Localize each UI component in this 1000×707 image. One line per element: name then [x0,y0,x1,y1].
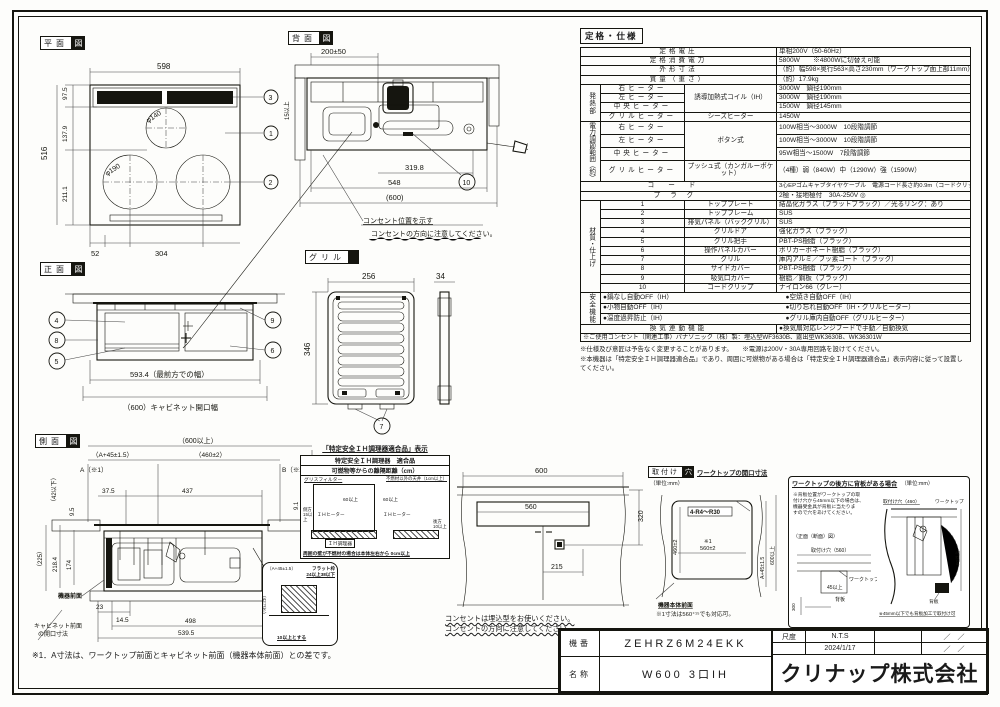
plan-dim-516: 516 [40,146,49,160]
detail-section [281,585,317,613]
spec-range-center: 中央ヒーター [601,148,685,161]
company-name: クリナップ株式会社 [773,655,987,692]
side-dim-498: 498 [185,618,196,625]
spec-note1: ※仕様及び意匠は予告なく変更することがあります。 ※電源は200V・30A専用回… [580,345,972,354]
front-dim-593: 593.4（最前方での幅） [130,369,209,379]
kiban-label: 機番 [561,631,600,657]
legend-label: サイドカバー [685,265,777,274]
spec-range-right: 右ヒーター [601,121,685,134]
backpanel-box: ワークトップの後方に背板がある場合 （単位:mm） ※背板位置がワークトップの取… [788,476,970,628]
plan-dim-137: 137.9 [62,125,69,142]
plan-dim-211: 211.1 [62,186,69,202]
detail-dim-42: （42以下） [261,593,267,617]
spec-size-label: 外形寸法 [581,66,777,75]
cabinet-view: 600 560 320 215 コンセントは埋込型をお使いください。 コンセント… [443,462,653,640]
safety-row: ●鍋なし自動OFF（IH）●空焼き自動OFF（IH） [601,293,971,303]
safety-left: ●小物自動OFF（IH） [603,304,666,312]
spec-plug: 2極・接地極付 30A-250V ◎ [777,191,971,200]
safety-right: ●切り忘れ自動OFF（IH・グリルヒーター） [786,304,969,312]
spec-safety-group: 安全機能 [581,293,601,324]
detail-box: （A+45±1.5） フラット枠 24以上38以下 （42以下） 10以上とする [262,562,338,646]
callout-4: 4 [55,318,59,325]
callout-1: 1 [269,131,273,138]
cabinet-dim-560: 560 [525,504,537,511]
side-dim-437: 437 [182,488,193,495]
grill-drawing: 256 34 346 7 [300,246,485,436]
rev-blank2 [875,643,922,655]
side-dim-95: 9.5 [70,507,76,516]
plan-title-zu: 図 [72,36,85,50]
legend-value: 樹脂／鋼板（ブラック） [777,274,971,283]
legend-no: 1 [601,200,685,209]
side-dim-145: 14.5 [116,617,129,624]
spec-outlet-note: ※ご使用コンセント（関連工事）パナソニック（株）製：埋込型WF3630B、露出型… [581,333,971,342]
bp-d45: 45以上 [827,584,843,591]
legend-no: 5 [601,237,685,246]
rear-dim-15: 15以上 [283,101,291,120]
safety-row: ●温度過昇防止（IH）●グリル庫内自動OFF（グリルヒーター） [601,314,971,324]
spec-left-val: 3000W 鍋径190mm [777,94,971,103]
legend-no: 4 [601,228,685,237]
spec-weight-label: 質量（重さ） [581,75,777,84]
cabinet-drawing: 600 560 320 215 [443,462,653,614]
bp-back1: 背板 [835,596,845,603]
cert-cooker-label: ＩＨ調理器 [325,539,355,548]
rev-blank1 [875,631,922,643]
side-label-cab1: キャビネット前面 [34,622,82,630]
side-view-title: 側面図 [35,434,80,448]
cert-filter-label: グリスフィルター [304,476,342,483]
callout-7: 7 [380,424,384,431]
legend-value: 庫内アルミ／フッ素コート（ブラック） [777,256,971,265]
callout-3: 3 [269,95,273,102]
cabinet-dim-600: 600 [535,466,548,475]
spec-section: 定格・仕様 定格電圧単相200V（50-60Hz） 定格消費電力5800W ※4… [580,26,972,373]
spec-voltage: 単相200V（50-60Hz） [777,48,971,57]
safety-right: ●グリル庫内自動OFF（グリルヒーター） [786,315,969,323]
mount-ref: ※1 [704,538,712,545]
legend-no: 6 [601,246,685,255]
cert-foot: 周囲の壁が不燃材の場合は本体左右から 0cm以上 [303,550,410,557]
spec-size: （約）幅598×奥行563×高さ230mm（ワークトップ面上部11mm） [777,66,971,75]
side-dim-42: （42以下） [51,474,58,505]
side-dim-5395: 539.5 [178,630,195,637]
bp-d60: 60以上 [954,550,960,565]
backpanel-title: ワークトップの後方に背板がある場合 [792,479,897,488]
drawing-sheet: 平面図 φ140 φ190 598 516 [0,0,1000,707]
rear-title-zu: 図 [320,31,333,45]
spec-range-left-val: 100W相当～3000W 10段階調節 [777,134,971,147]
kiban-value: ZEHRZ6M24EKK [600,631,772,657]
side-label-front: 機器前面 [58,592,82,600]
legend-value: SUS [777,219,971,228]
cert-ih2: ＩＨヒーター [383,512,411,518]
side-dim-23: 23 [96,604,104,611]
bp-back2: 背板 [929,598,939,605]
bp-hole560: 取付け穴（560） [811,547,849,554]
rear-dim-600: (600) [386,193,404,202]
spec-power: 5800W ※4800Wに切替え可能 [777,57,971,66]
scale-value: N.T.S [806,631,875,643]
safety-left: ●鍋なし自動OFF（IH） [603,294,673,302]
mount-drawing: 4-R4～R30 460±2 ※1 560±2 A+45±1.5 600以上 機… [648,487,786,617]
spec-range-left: 左ヒーター [601,134,685,147]
side-note: ※1．A寸法は、ワークトップ前面とキャビネット前面（機器本体前面）との差です。 [32,650,336,661]
plan-drawing: φ140 φ190 598 516 97.5 137.9 211.1 52 30… [35,30,290,262]
rear-note2: コンセントの方向に注意してください。 [371,229,497,238]
spec-note2: ※本機器は「特定安全ＩＨ調理器適合品」であり、周囲に可燃物がある場合は「特定安全… [580,355,965,374]
rear-dim-200: 200±50 [321,47,346,56]
cabinet-note1: コンセントは埋込型をお使いください。 [445,614,653,624]
backpanel-unit: （単位:mm） [901,479,933,488]
cert-head2: 可燃物等からの離隔距離（cm） [301,466,449,476]
plan-dia140: φ140 [145,110,163,125]
legend-no: 10 [601,283,685,292]
bp-worktop1: ワークトップ [849,577,877,583]
plan-view-title: 平面図 [40,36,85,50]
cert-ih1: ＩＨヒーター [317,512,345,518]
legend-label: 吸気口カバー [685,274,777,283]
scale-label: 尺度 [773,631,806,643]
legend-value: PBT-PS樹脂（ブラック） [777,237,971,246]
spec-vent: ●換気扇対応レンジフードで手動／自動換気 [777,324,971,333]
cert-title: 「特定安全ＩＨ調理器適合品」表示 [300,443,450,453]
spec-table: 定格電圧単相200V（50-60Hz） 定格消費電力5800W ※4800Wに切… [580,47,971,342]
rear-view: 背面図 15以上 2 [283,25,528,245]
backpanel-right-diagram: 取付け穴（460） ワークトップ 60以上 背板 ※45mm以下でも背板加工で取… [877,495,967,621]
spec-right-val: 3000W 鍋径190mm [777,84,971,93]
cabinet-dim-320: 320 [638,510,645,522]
legend-label: グリルドア [685,228,777,237]
callout-8: 8 [55,338,59,345]
mount-title-text: 取付け [648,466,683,478]
mount-corner: 4-R4～R30 [690,510,721,516]
title-block-left: 機番 ZEHRZ6M24EKK 名称 W600 3口IH [560,630,772,692]
spec-range-group: 電力調節範囲（約） [581,121,601,181]
side-dim-375: 37.5 [102,488,115,495]
spec-plug-text: 2極・接地極付 30A-250V [779,192,858,199]
rev-marks2: ／ ／ [922,643,987,655]
mount-dim-600: 600以上 [768,546,776,565]
grill-view: グリル 256 34 346 [300,246,485,436]
cert-ceiling-label: 不燃材以外の天井（1cm以上） [386,476,447,482]
callout-2: 2 [269,180,273,187]
mount-unit: （単位:mm） [650,479,786,487]
plug-icon: ◎ [860,192,866,199]
side-dim-225: （225） [37,548,44,570]
grill-title-square [349,250,359,264]
grill-dim-34: 34 [436,272,445,281]
front-drawing: 4 8 5 9 6 593.4（最前方での幅） （600）キャビネット開口幅 [35,258,290,418]
backpanel-note: ※背板位置がワークトップの取 付け穴から45mm以下の場合は、 機器受金具が背板… [793,493,871,517]
side-dim-600over: （600以上） [178,436,218,445]
mount-title-inv: 穴 [683,466,694,478]
grill-dim-346: 346 [303,342,312,356]
cabinet-dim-215: 215 [551,564,563,571]
spec-power-label: 定格消費電力 [581,57,777,66]
name-label: 名称 [561,657,600,692]
cert-counter-right [393,530,439,539]
backpanel-left-diagram: 取付け穴（560） ワークトップ 45以上 背板 300 [791,541,877,623]
plan-dim-304: 304 [155,249,168,258]
side-dim-460: （460±2） [195,451,226,459]
front-view-title: 正面図 [40,262,85,276]
plan-dim-52: 52 [91,249,99,258]
rear-view-title: 背面図 [288,31,333,45]
safety-row: ●小物自動OFF（IH）●切り忘れ自動OFF（IH・グリルヒーター） [601,303,971,313]
front-title-text: 正面 [40,262,72,276]
spec-weight: （約）17.9kg [777,75,971,84]
safety-left: ●温度過昇防止（IH） [603,315,666,323]
front-title-zu: 図 [72,262,85,276]
grill-title-text: グリル [305,250,349,264]
cert-d60b: 60以上 [383,496,398,503]
legend-label: グリル把手 [685,237,777,246]
mount-box: 取付け穴 ワークトップの開口寸法 （単位:mm） 4-R4～R30 460±2 … [648,466,786,626]
legend-value: 結晶化ガラス（フラットブラック）／光るリング：あり [777,200,971,209]
bp-foot: ※45mm以下でも背板加工で取付け可 [879,610,956,617]
rear-dim-319: 319.8 [405,163,424,172]
legend-value: PBT-PS樹脂（ブラック） [777,265,971,274]
plan-dim-97: 97.5 [62,87,69,100]
callout-9: 9 [271,318,275,325]
side-dim-a45: （A+45±1.5） [92,451,133,459]
legend-label: 排気パネル（バックグリル） [685,219,777,228]
mount-subtitle: ワークトップの開口寸法 [697,468,767,477]
cert-head1: 特定安全ＩＨ調理器 適合品 [301,456,449,466]
spec-range-center-val: 95W相当～1500W 7段階調節 [777,148,971,161]
legend-label: トップフレーム [685,209,777,218]
grill-view-title: グリル [305,250,359,264]
spec-plug-label: プラグ [581,191,777,200]
plan-title-text: 平面 [40,36,72,50]
cert-box: 「特定安全ＩＨ調理器適合品」表示 特定安全ＩＨ調理器 適合品 可燃物等からの離隔… [300,443,450,559]
legend-label: 操作パネルカバー [685,246,777,255]
legend-no: 9 [601,274,685,283]
title-block-right: 尺度 N.T.S ／ ／ 2024/1/17 ／ ／ クリナップ株式会社 [772,630,987,692]
legend-no: 8 [601,265,685,274]
bp-d300: 300 [791,603,796,611]
rear-drawing: 15以上 200±50 319.8 548 (600) 10 コンセント位置を示… [283,25,528,245]
rear-note1: コンセント位置を示す [363,216,433,225]
legend-label: グリル [685,256,777,265]
side-title-text: 側面 [35,434,67,448]
detail-worktop-line [269,615,329,616]
spec-range-grill-val: （4種）弱（840W）中（1290W）強（1590W） [777,161,971,182]
rev-marks1: ／ ／ [922,631,987,643]
bp-worktop2: ワークトップ [935,499,964,505]
spec-vent-label: 換気連動機能 [581,324,777,333]
spec-range-grill-type: プッシュ式（カンガルーポケット） [685,161,777,182]
side-label-cab2: の開口寸法 [38,630,68,638]
rear-dim-548: 548 [388,178,401,187]
legend-no: 2 [601,209,685,218]
safety-right: ●空焼き自動OFF（IH） [786,294,969,302]
spec-center-val: 1500W 鍋径145mm [777,103,971,112]
legend-no: 7 [601,256,685,265]
spec-cord: 3心EPゴムキャブタイヤケーブル 電源コード長さ約0.9m（コードクリップ部まで… [777,182,971,191]
legend-value: SUS [777,209,971,218]
legend-value: ナイロン66（グレー） [777,283,971,292]
side-dim-2184: 218.4 [53,556,59,572]
spec-grill-val: 1450W [777,112,971,121]
cert-diagram-left [313,484,375,532]
spec-range-right-val: 100W相当～3000W 10段階調節 [777,121,971,134]
cert-frame: 特定安全ＩＨ調理器 適合品 可燃物等からの離隔距離（cm） グリスフィルター 不… [300,455,450,559]
date-value: 2024/1/17 [806,643,875,655]
cert-counter-left [311,530,377,539]
spec-grill-heater: グリルヒーター [601,112,685,121]
spec-material-group: 材質・仕上げ [581,200,601,292]
backpanel-note-line: すので穴をあけてください。 [793,511,871,517]
name-value: W600 3口IH [600,657,772,692]
callout-10: 10 [463,180,471,187]
detail-frame-dim: 24以上38以下 [306,572,335,578]
mount-dim-a45: A+45±1.5 [760,557,766,579]
spec-left-heater: 左ヒーター [601,94,685,103]
callout-6: 6 [271,348,275,355]
legend-value: ポリカーボネート樹脂（ブラック） [777,246,971,255]
spec-range-type: ボタン式 [685,121,777,160]
legend-label: トッププレート [685,200,777,209]
front-view: 正面図 4 8 5 9 6 593.4（最前方での幅） [35,258,290,418]
legend-value: 強化ガラス（ブラック） [777,228,971,237]
side-dim-174: 174 [67,559,73,570]
plan-dia190: φ190 [104,163,122,178]
bp-hole460: 取付け穴（460） [883,498,920,505]
rear-title-text: 背面 [288,31,320,45]
spec-cord-label: コード [581,182,777,191]
mount-title: 取付け穴 [648,466,694,478]
mount-note: ※1寸法は560⁺¹⁵でも対応可。 [656,610,734,617]
mount-dim-560: 560±2 [700,546,716,552]
grill-dim-256: 256 [362,272,376,281]
front-dim-600: （600）キャビネット開口幅 [123,402,219,412]
side-dim-a: A（※1） [80,466,107,474]
detail-dim-a45: （A+45±1.5） [267,566,296,572]
cert-side-label: 側方 15以上 [303,508,315,523]
spec-header: 定格・仕様 [580,28,643,44]
mount-dim-460: 460±2 [673,539,679,555]
legend-label: コードクリップ [685,283,777,292]
spec-voltage-label: 定格電圧 [581,48,777,57]
spec-grill-type: シーズヒーター [685,112,777,121]
plan-dim-598: 598 [157,62,171,71]
detail-foot: 10以上とする [277,634,306,641]
cert-d60a: 60以上 [343,496,358,503]
callout-5: 5 [55,359,59,366]
side-title-zu: 図 [67,434,80,448]
legend-no: 3 [601,219,685,228]
spec-right-heater: 右ヒーター [601,84,685,93]
spec-heater-group: 発熱部 [581,84,601,121]
spec-range-grill: グリルヒーター [601,161,685,182]
backpanel-sub: （正面（断面）図） [793,533,838,540]
mount-front-label: 機器本体前面 [658,601,693,609]
plan-view: 平面図 φ140 φ190 598 516 [35,30,290,262]
spec-ih-type: 誘導加熱式コイル（IH） [685,84,777,112]
spec-center-heater: 中央ヒーター [601,103,685,112]
date-blank [773,643,806,655]
title-block: 機番 ZEHRZ6M24EKK 名称 W600 3口IH 尺度 N.T.S ／ … [558,628,989,694]
